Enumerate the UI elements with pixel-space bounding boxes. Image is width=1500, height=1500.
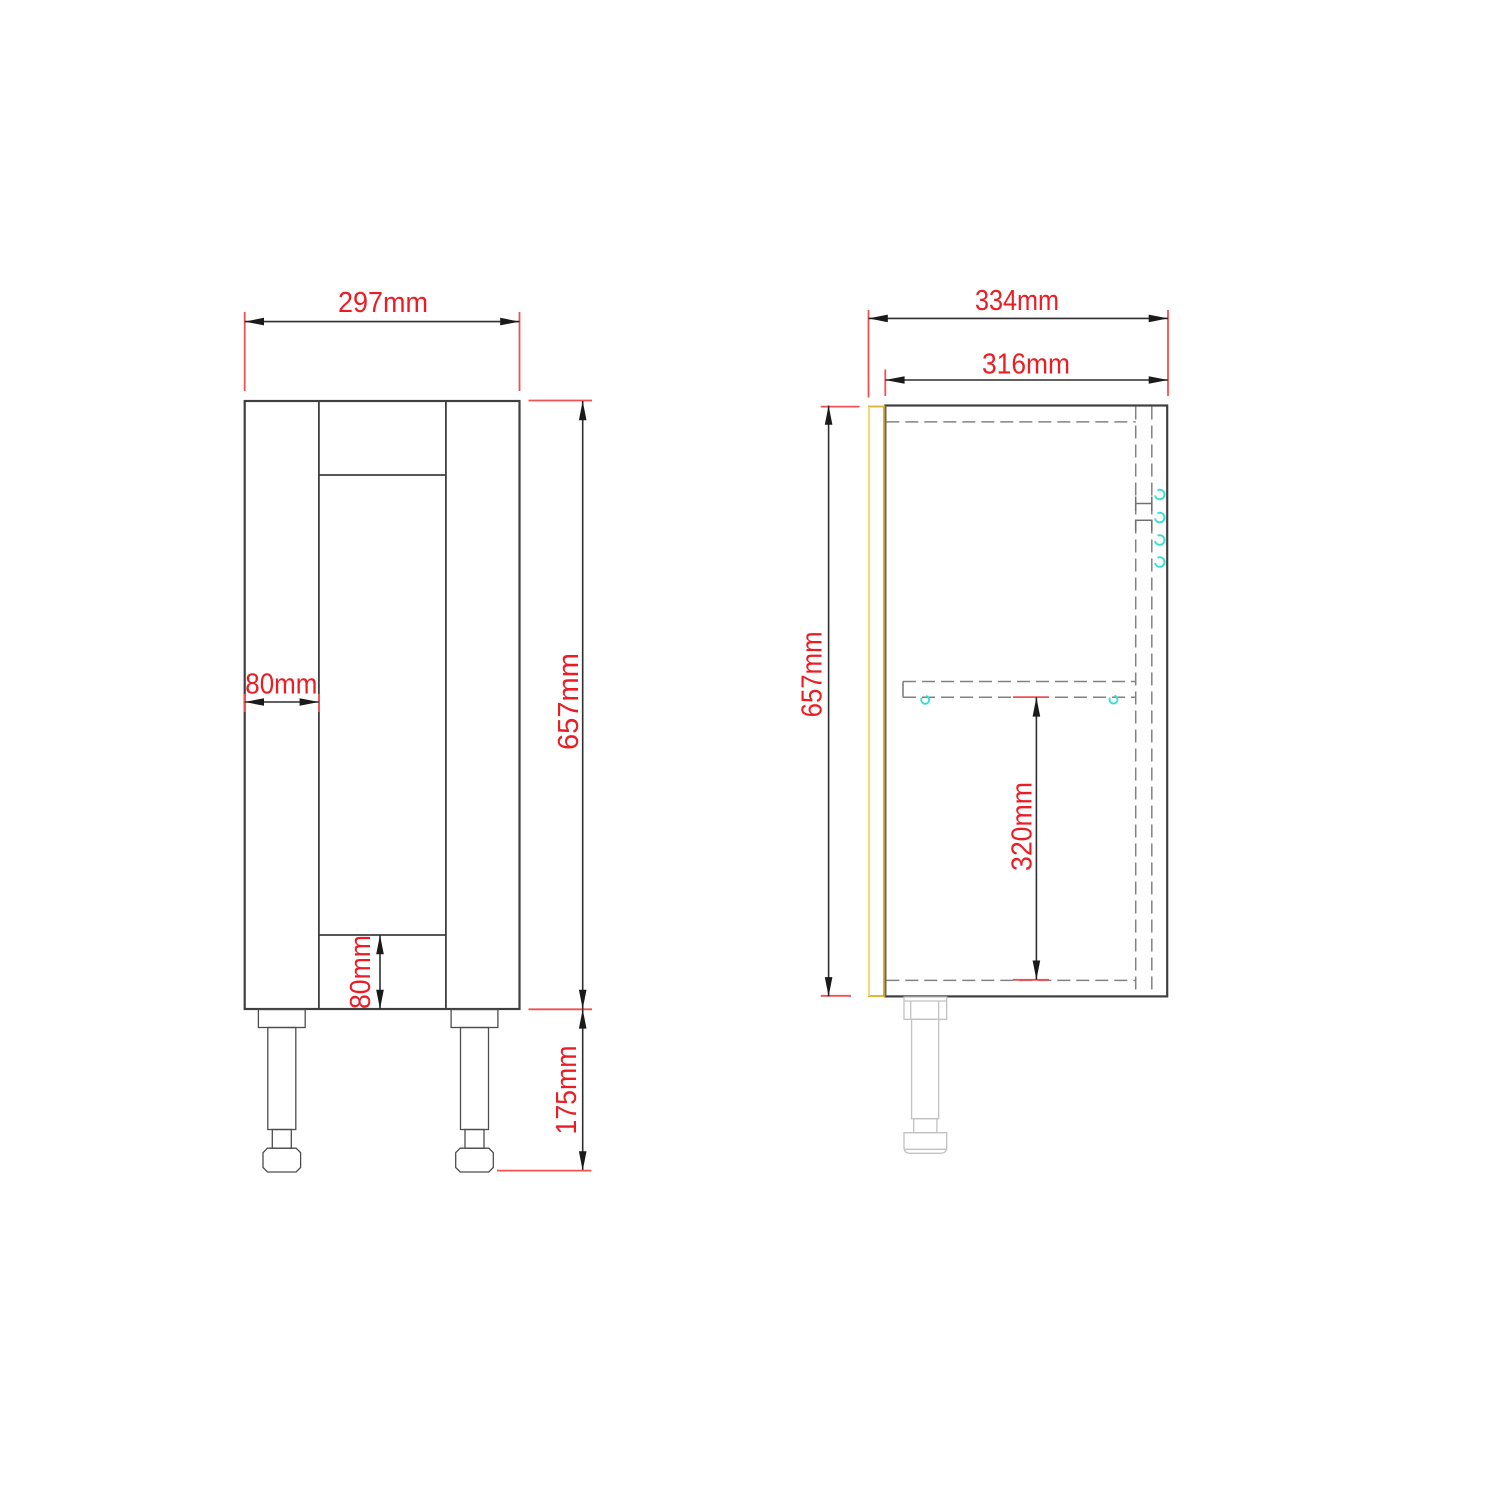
svg-text:334mm: 334mm xyxy=(975,285,1059,317)
svg-text:175mm: 175mm xyxy=(551,1046,583,1135)
svg-text:80mm: 80mm xyxy=(345,935,377,1009)
svg-text:320mm: 320mm xyxy=(1007,782,1039,871)
svg-text:657mm: 657mm xyxy=(796,631,828,717)
svg-text:316mm: 316mm xyxy=(982,349,1070,381)
svg-text:297mm: 297mm xyxy=(338,287,428,319)
svg-text:80mm: 80mm xyxy=(245,669,317,701)
svg-text:657mm: 657mm xyxy=(553,653,585,750)
